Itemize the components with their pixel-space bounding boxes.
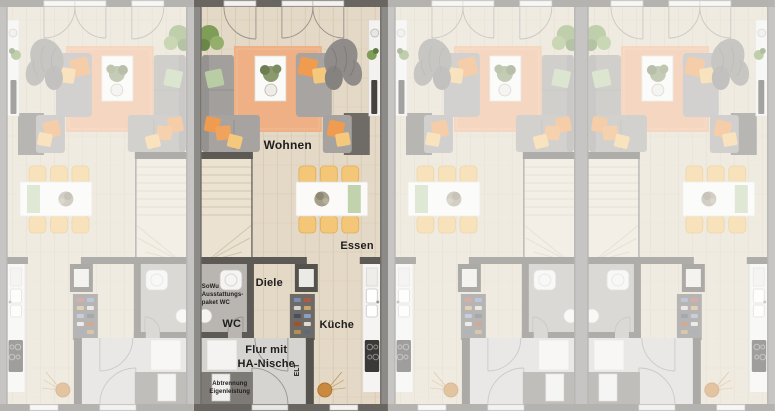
unit-4-floorplan[interactable]: [581, 0, 775, 411]
unit-2-plan-drawing: [194, 0, 388, 411]
townhouse-floorplan-image: Wohnen Essen Diele WC Küche Flur mit HA-…: [0, 0, 775, 411]
unit-4-dim-overlay: [581, 0, 775, 411]
unit-1-floorplan[interactable]: [0, 0, 194, 411]
unit-3-floorplan[interactable]: [388, 0, 582, 411]
unit-1-dim-overlay: [0, 0, 194, 411]
unit-3-dim-overlay: [388, 0, 582, 411]
unit-2-floorplan-highlighted[interactable]: Wohnen Essen Diele WC Küche Flur mit HA-…: [194, 0, 388, 411]
